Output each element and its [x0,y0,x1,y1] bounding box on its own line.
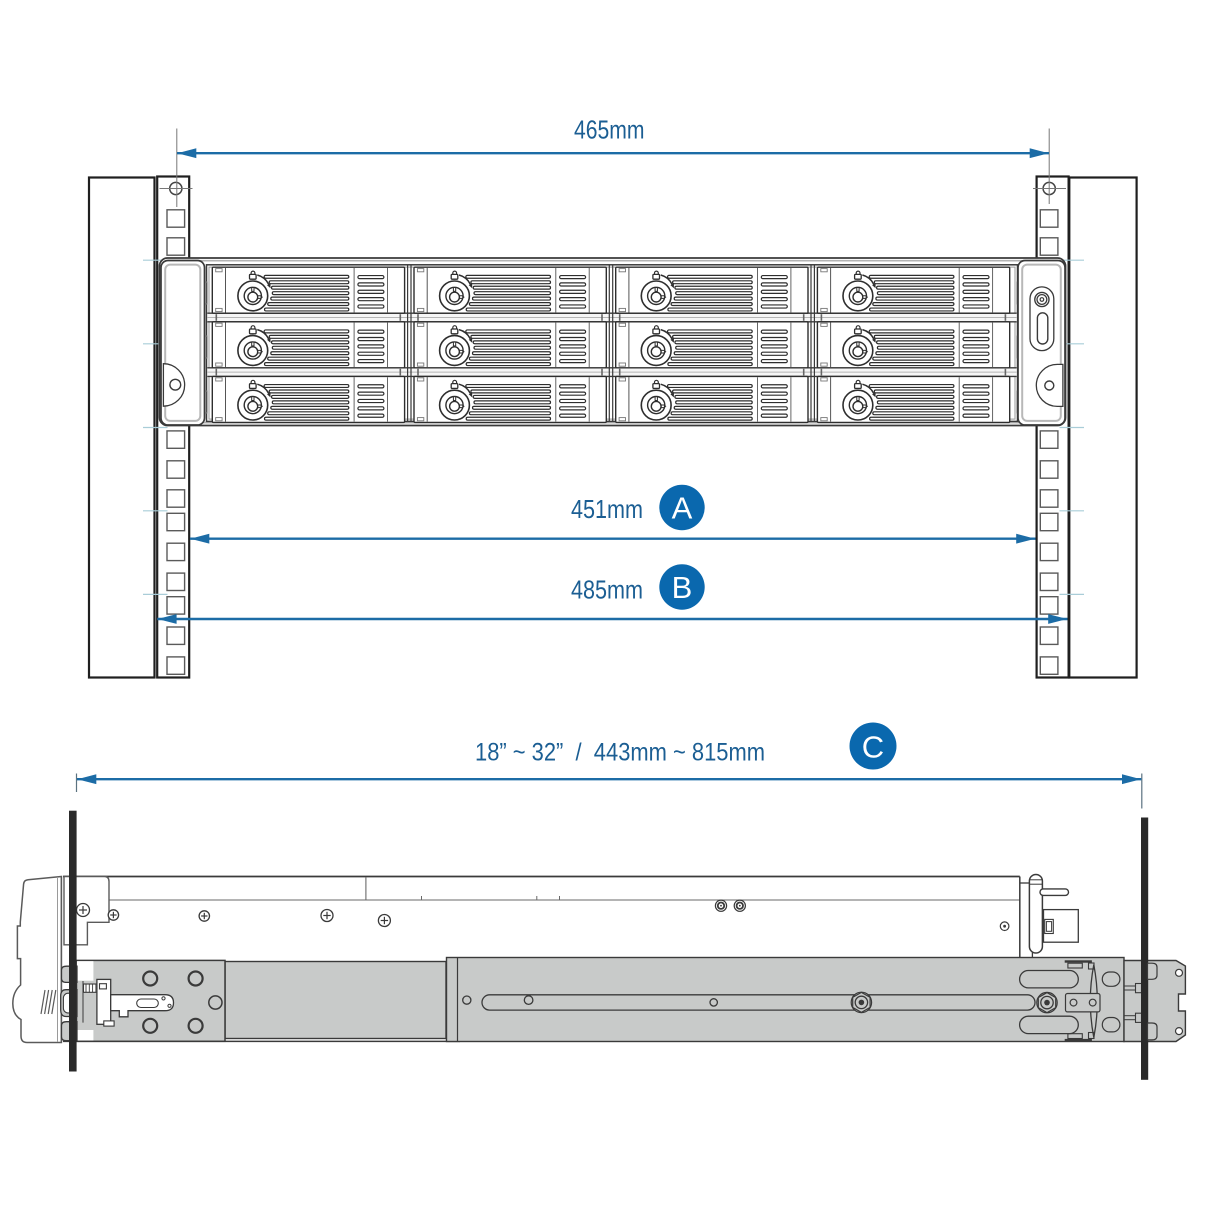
svg-text:C: C [862,730,884,765]
svg-text:465mm: 465mm [574,114,645,144]
svg-text:A: A [672,491,693,526]
svg-text:B: B [672,570,693,605]
svg-text:451mm: 451mm [571,494,643,524]
svg-text:485mm: 485mm [571,574,643,604]
svg-text:18” ~ 32” / 443mm ~ 815mm: 18” ~ 32” / 443mm ~ 815mm [475,739,765,766]
